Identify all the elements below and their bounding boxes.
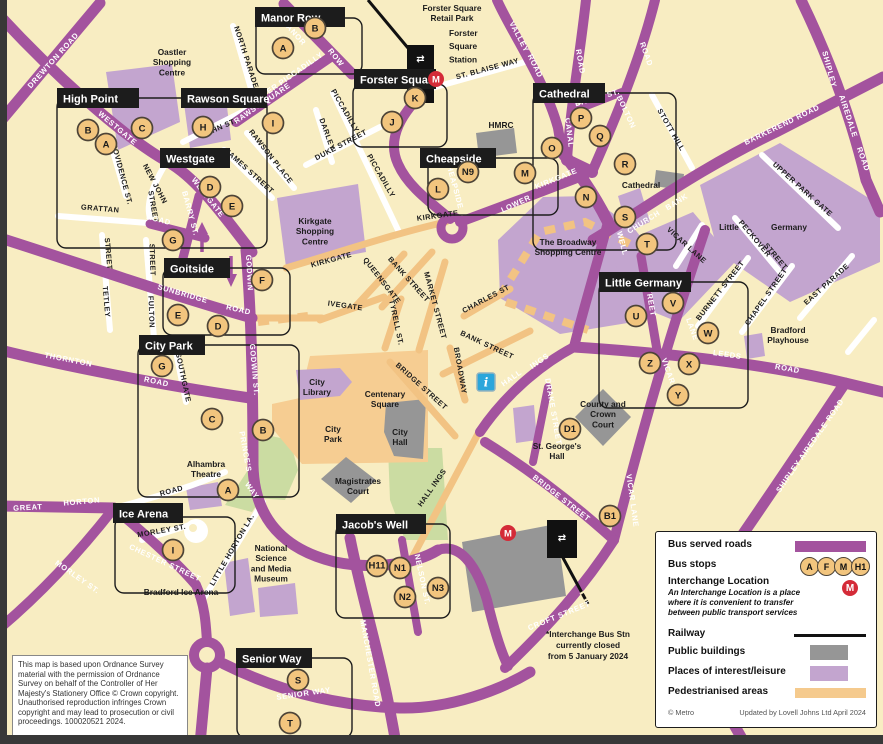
svg-text:E: E <box>175 310 181 321</box>
window-edge-left <box>0 0 7 744</box>
svg-text:D1: D1 <box>564 424 577 435</box>
bus-stop-P[interactable]: P <box>571 108 592 129</box>
svg-text:Jacob's Well: Jacob's Well <box>342 520 408 532</box>
svg-text:A: A <box>225 485 232 496</box>
legend: Bus served roads Bus stops A F M H1 Inte… <box>655 531 877 728</box>
svg-text:M: M <box>504 528 512 539</box>
zone-label-senior-way: Senior Way <box>236 648 312 668</box>
legend-public-buildings-label: Public buildings <box>668 646 745 657</box>
svg-text:B: B <box>85 125 92 136</box>
bus-stop-B1[interactable]: B1 <box>600 506 621 527</box>
svg-text:J: J <box>389 117 394 128</box>
bus-stop-Y[interactable]: Y <box>668 385 689 406</box>
bus-stop-T[interactable]: T <box>637 234 658 255</box>
svg-text:V: V <box>670 298 677 309</box>
window-edge-bottom <box>0 735 883 744</box>
svg-text:B: B <box>312 23 319 34</box>
svg-text:N: N <box>583 192 590 203</box>
bus-stop-W[interactable]: W <box>698 323 719 344</box>
copyright-notice: This map is based upon Ordnance Survey m… <box>12 655 188 742</box>
bus-stop-D1[interactable]: D1 <box>560 419 581 440</box>
svg-text:N3: N3 <box>432 583 444 594</box>
bus-stop-N[interactable]: N <box>576 187 597 208</box>
legend-public-building-swatch <box>810 645 848 660</box>
bus-stop-S[interactable]: S <box>615 207 636 228</box>
svg-text:G: G <box>158 361 165 372</box>
svg-text:L: L <box>435 184 441 195</box>
bus-stop-B[interactable]: B <box>78 120 99 141</box>
svg-text:High Point: High Point <box>63 94 118 106</box>
place-label: Forster SquareRetail Park <box>422 3 481 23</box>
svg-text:i: i <box>484 376 489 390</box>
legend-bus-roads-label: Bus served roads <box>668 539 752 550</box>
interchange-icon: M <box>842 580 858 596</box>
bus-stop-L[interactable]: L <box>428 179 449 200</box>
legend-places-swatch <box>810 666 848 681</box>
place-label: Little <box>719 222 739 232</box>
svg-text:K: K <box>412 93 419 104</box>
rail-symbol-icon: ⇄ <box>416 54 424 65</box>
rail-symbol-icon: ⇄ <box>558 533 566 544</box>
legend-interchange-description: An Interchange Location is a place where… <box>668 588 800 618</box>
bus-stop-A[interactable]: A <box>218 480 239 501</box>
svg-text:T: T <box>644 239 650 250</box>
svg-text:G: G <box>169 235 176 246</box>
bus-stop-S[interactable]: S <box>288 670 309 691</box>
place-label: BradfordPlayhouse <box>767 325 809 345</box>
svg-text:O: O <box>548 143 555 154</box>
legend-railway-label: Railway <box>668 628 705 639</box>
bus-stop-E[interactable]: E <box>222 196 243 217</box>
zone-label-forster-square: Forster Square <box>354 69 438 89</box>
svg-text:T: T <box>287 718 293 729</box>
bus-stop-H11[interactable]: H11 <box>367 556 388 577</box>
bus-stop-A[interactable]: A <box>273 38 294 59</box>
svg-text:I: I <box>272 118 275 129</box>
road-name-label: GREAT <box>13 502 43 513</box>
legend-bus-stops-label: Bus stops <box>668 559 716 570</box>
svg-text:A: A <box>280 43 287 54</box>
interchange-icon[interactable]: M <box>428 71 444 87</box>
place-label: The BroadwayShopping Centre <box>535 237 602 257</box>
zone-label-goitside: Goitside <box>164 258 230 278</box>
ice-rink <box>184 519 208 543</box>
bus-stop-C[interactable]: C <box>132 118 153 139</box>
legend-bus-stop-icons: A F M H1 <box>802 557 870 576</box>
svg-text:F: F <box>259 275 265 286</box>
bus-stop-B[interactable]: B <box>305 18 326 39</box>
bus-stop-D[interactable]: D <box>200 177 221 198</box>
svg-text:I: I <box>172 545 175 556</box>
legend-railway-swatch <box>794 634 866 637</box>
legend-pedestrianised-swatch <box>795 688 866 698</box>
legend-bus-road-swatch <box>795 541 866 552</box>
svg-text:B1: B1 <box>604 511 617 522</box>
svg-text:Westgate: Westgate <box>166 154 215 166</box>
svg-text:H: H <box>200 122 207 133</box>
bus-stop-B[interactable]: B <box>253 420 274 441</box>
svg-text:Goitside: Goitside <box>170 264 214 276</box>
svg-text:R: R <box>622 159 629 170</box>
bus-stop-U[interactable]: U <box>626 306 647 327</box>
bus-stop-D[interactable]: D <box>208 316 229 337</box>
svg-text:Little Germany: Little Germany <box>605 278 683 290</box>
svg-text:S: S <box>295 675 301 686</box>
svg-text:Z: Z <box>647 358 653 369</box>
place-label: ForsterSquareStation <box>449 28 478 64</box>
place-label: CityPark <box>324 424 342 444</box>
svg-text:Forster Square: Forster Square <box>360 75 438 87</box>
place-label: CityHall <box>392 427 408 447</box>
bus-stop-G[interactable]: G <box>152 356 173 377</box>
bus-stop-Q[interactable]: Q <box>590 126 611 147</box>
svg-text:X: X <box>686 359 693 370</box>
bus-stop-X[interactable]: X <box>679 354 700 375</box>
bus-stop-C[interactable]: C <box>202 409 223 430</box>
bus-stop-N2[interactable]: N2 <box>395 587 416 608</box>
road-below-roundabout <box>200 668 207 744</box>
bus-stop-O[interactable]: O <box>542 138 563 159</box>
place-label: HMRC <box>489 120 514 130</box>
bus-stop-I[interactable]: I <box>263 113 284 134</box>
bus-stop-icon: H1 <box>851 557 870 576</box>
bus-stop-M[interactable]: M <box>515 163 536 184</box>
zone-label-ice-arena: Ice Arena <box>113 503 183 523</box>
update-credit: Updated by Lovell Johns Ltd April 2024 <box>739 708 866 717</box>
svg-text:E: E <box>229 201 235 212</box>
information-icon[interactable]: i <box>477 373 495 391</box>
zone-label-jacob-s-well: Jacob's Well <box>336 514 426 534</box>
zone-label-rawson-square: Rawson Square <box>181 88 270 108</box>
svg-text:C: C <box>139 123 146 134</box>
svg-text:D: D <box>207 182 214 193</box>
place-label: Cathedral <box>622 180 660 190</box>
legend-places-label: Places of interest/leisure <box>668 666 786 677</box>
svg-text:U: U <box>633 311 640 322</box>
svg-text:D: D <box>215 321 222 332</box>
bus-stop-I[interactable]: I <box>163 540 184 561</box>
bus-stop-J[interactable]: J <box>382 112 403 133</box>
place-label: Bradford Ice Arena <box>144 587 219 597</box>
bus-stop-N9[interactable]: N9 <box>458 162 479 183</box>
bus-stop-A[interactable]: A <box>96 134 117 155</box>
bus-stop-F[interactable]: F <box>252 270 273 291</box>
svg-text:H11: H11 <box>369 560 387 571</box>
svg-text:M: M <box>432 74 440 85</box>
place-label: NationalScienceand MediaMuseum <box>251 543 292 584</box>
zone-label-high-point: High Point <box>57 88 139 108</box>
svg-text:B: B <box>260 425 267 436</box>
svg-text:Senior Way: Senior Way <box>242 654 302 666</box>
bus-stop-K[interactable]: K <box>405 88 426 109</box>
zone-label-cheapside: Cheapside <box>420 148 496 168</box>
place-label: Germany <box>771 222 807 232</box>
zone-label-city-park: City Park <box>139 335 205 355</box>
street-name-label: FULTON <box>146 296 156 329</box>
street-name-label: STREET <box>147 244 157 276</box>
bus-stop-N3[interactable]: N3 <box>428 578 449 599</box>
bus-stop-N1[interactable]: N1 <box>390 558 411 579</box>
svg-text:Ice Arena: Ice Arena <box>119 509 169 521</box>
bus-stop-H[interactable]: H <box>193 117 214 138</box>
bus-stop-G[interactable]: G <box>163 230 184 251</box>
svg-text:M: M <box>521 168 529 179</box>
legend-interchange-label: Interchange Location <box>668 576 769 587</box>
interchange-closure-note: *Interchange Bus Stn currently closed fr… <box>520 629 656 661</box>
svg-text:S: S <box>622 212 628 223</box>
svg-text:W: W <box>704 328 713 339</box>
interchange-icon[interactable]: M <box>500 525 516 541</box>
svg-text:N1: N1 <box>394 563 407 574</box>
metro-credit: © Metro <box>668 708 694 717</box>
bus-stop-T[interactable]: T <box>280 713 301 734</box>
svg-text:Cathedral: Cathedral <box>539 89 590 101</box>
zone-label-manor-row: Manor Row <box>255 7 345 27</box>
legend-pedestrianised-label: Pedestrianised areas <box>668 686 768 697</box>
svg-text:Rawson Square: Rawson Square <box>187 94 270 106</box>
svg-text:N9: N9 <box>462 167 474 178</box>
svg-text:Q: Q <box>596 131 603 142</box>
svg-text:P: P <box>578 113 585 124</box>
bus-stop-E[interactable]: E <box>168 305 189 326</box>
bradford-bus-map: ⇄ ⇄ NORTH PARADENEW JOHNSTREETJOHN ST.RA… <box>0 0 883 744</box>
svg-text:C: C <box>209 414 216 425</box>
svg-text:City Park: City Park <box>145 341 194 353</box>
bus-stop-Z[interactable]: Z <box>640 353 661 374</box>
zone-label-westgate: Westgate <box>160 148 230 168</box>
zone-label-little-germany: Little Germany <box>599 272 691 292</box>
svg-text:A: A <box>103 139 110 150</box>
svg-text:N2: N2 <box>399 592 411 603</box>
place-label: AlhambraTheatre <box>187 459 226 479</box>
svg-text:Y: Y <box>675 390 682 401</box>
bus-stop-V[interactable]: V <box>663 293 684 314</box>
bus-stop-R[interactable]: R <box>615 154 636 175</box>
zone-label-cathedral: Cathedral <box>533 83 605 103</box>
